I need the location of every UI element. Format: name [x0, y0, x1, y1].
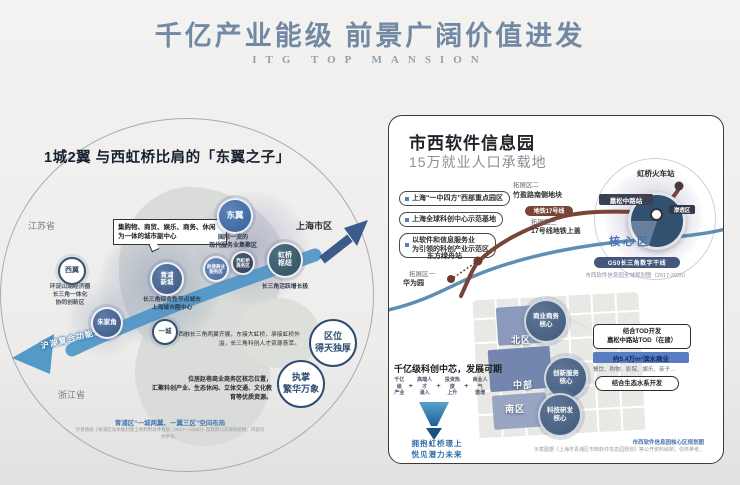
ext2-label: 拓展区二 [513, 182, 539, 190]
node-hongqiao-sub: 长三角活跃增长极 [252, 284, 318, 292]
eco-callout: 结合生态水系开发 [595, 376, 679, 391]
plus-sign: + [437, 383, 441, 390]
tod-callout-line1: 结合TOD开发 [594, 327, 690, 336]
ext2-sub-label: 竹盈路南侧地块 [513, 191, 562, 200]
jiasong-station-dot [650, 208, 663, 221]
node-tech-core: 科技研发 核心 [538, 393, 582, 437]
bottom-headline: 千亿级科创中芯，发展可期 [394, 362, 502, 375]
dongfang-station-label: 东方绿舟站 [427, 252, 462, 261]
g50-badge: G50长三角数字干线 [594, 257, 680, 268]
label-shanghai: 上海市区 [296, 219, 332, 232]
right-caption: 市西软件信息园核心区规划图 [539, 438, 704, 446]
node-business-core: 商业商务 核心 [524, 299, 568, 343]
waterfront-sub: 餐饮、购物、影院、娱乐、亲子… [593, 365, 689, 373]
slogan: 拥抱虹桥璟上 悦见潜力未来 [397, 438, 477, 461]
node-zhujiajiao: 朱家角 [91, 307, 123, 339]
node-qingpu: 青浦 新城 [150, 262, 184, 296]
ext1-sub-label: 华为园 [403, 279, 424, 288]
label-jiangsu: 江苏省 [28, 219, 55, 232]
right-card: 市西软件信息园 15万就业人口承载地 上海“一中四方”西部重点园区 上海全球科创… [388, 115, 724, 464]
zone-mid-label: 中部 [513, 378, 533, 391]
jiasong-station-badge: 嘉松中路站 [599, 194, 653, 205]
para-east-link: 西融长三角两翼齐展，东接大虹桥，承接虹桥外溢，长三角科创人才资源荟萃。 [170, 331, 300, 348]
node-dongyi: 东翼 [217, 198, 253, 234]
zone-south-label: 南区 [505, 402, 525, 415]
node-xiyi-sub: 环淀山湖经济圈 长三角一体化 协同创新区 [37, 284, 103, 307]
right-footnote: 示意图据《上海市青浦区市西软件信息园规划》等公开资料绘制，仅供参考。 [499, 446, 704, 453]
node-qingpu-sub: 长三角综合性节点城市 上海城市圈中心 [122, 297, 222, 313]
tod-callout: 结合TOD开发 嘉松中路站TOD（在建） [593, 324, 691, 349]
plus-sign: + [464, 383, 468, 390]
badge-location: 区位 得天独厚 [309, 319, 357, 367]
hongqiao-station-label: 虹桥火车站 [637, 169, 675, 179]
growth-item-1: 千亿级 产业 [392, 377, 407, 397]
node-dongyi-sub: 国际一流的 现代服务业集聚区 [194, 234, 272, 250]
growth-item-3: 投资热度 上升 [443, 377, 463, 397]
page-title: 千亿产业能级 前景广阔价值进发 [0, 14, 740, 53]
waterfront-highlight: 约5.4万m²滨水商业 [593, 352, 689, 363]
core-zone-label: 核心区 [609, 233, 651, 249]
growth-items: 千亿级 产业 + 高端人才 涌入 + 投资热度 上升 + 商业人气 激增 [392, 377, 490, 397]
para-location: 位居赵巷商业商务区核芯位置， 汇聚科创产业、生态休闲、立体交通、文化教育等优质资… [150, 376, 272, 403]
node-xiyi: 西翼 [58, 257, 86, 285]
label-zhejiang: 浙江省 [58, 388, 85, 401]
left-title: 1城2翼 与西虹桥比肩的「东翼之子」 [44, 146, 291, 167]
growth-item-4: 商业人气 激增 [470, 377, 490, 397]
tod-callout-line2: 嘉松中路站TOD（在建） [594, 336, 690, 345]
node-xihongqiao: 西虹桥 商务区 [231, 251, 255, 275]
node-hongqiao: 虹桥 枢纽 [267, 242, 303, 278]
line17-badge: 地铁17号线 [525, 206, 573, 216]
penetration-zone-badge: 渗透区 [669, 205, 695, 214]
poster: 千亿产业能级 前景广阔价值进发 ITG TOP MANSION 沪湖复合功能发展… [0, 0, 740, 485]
left-footnote: 示意图据《青浦区总体规划暨土地利用总体规划（2017—2035）》及政府公开资料… [74, 427, 266, 441]
g50-caption: 市西软件信息园全域规划图（2017-2025） [575, 271, 699, 279]
node-zhaoxiang: 赵巷商业 服务区 [203, 256, 229, 282]
page-subtitle: ITG TOP MANSION [0, 54, 740, 66]
ext3-sub-label: 17号线地铁上盖 [531, 227, 581, 236]
badge-prosperity: 执掌 繁华万象 [277, 360, 325, 408]
growth-item-2: 高端人才 涌入 [415, 377, 435, 397]
plus-sign: + [409, 383, 413, 390]
left-caption: 青浦区“一城两翼、一翼三区”空间布局 [90, 417, 250, 427]
